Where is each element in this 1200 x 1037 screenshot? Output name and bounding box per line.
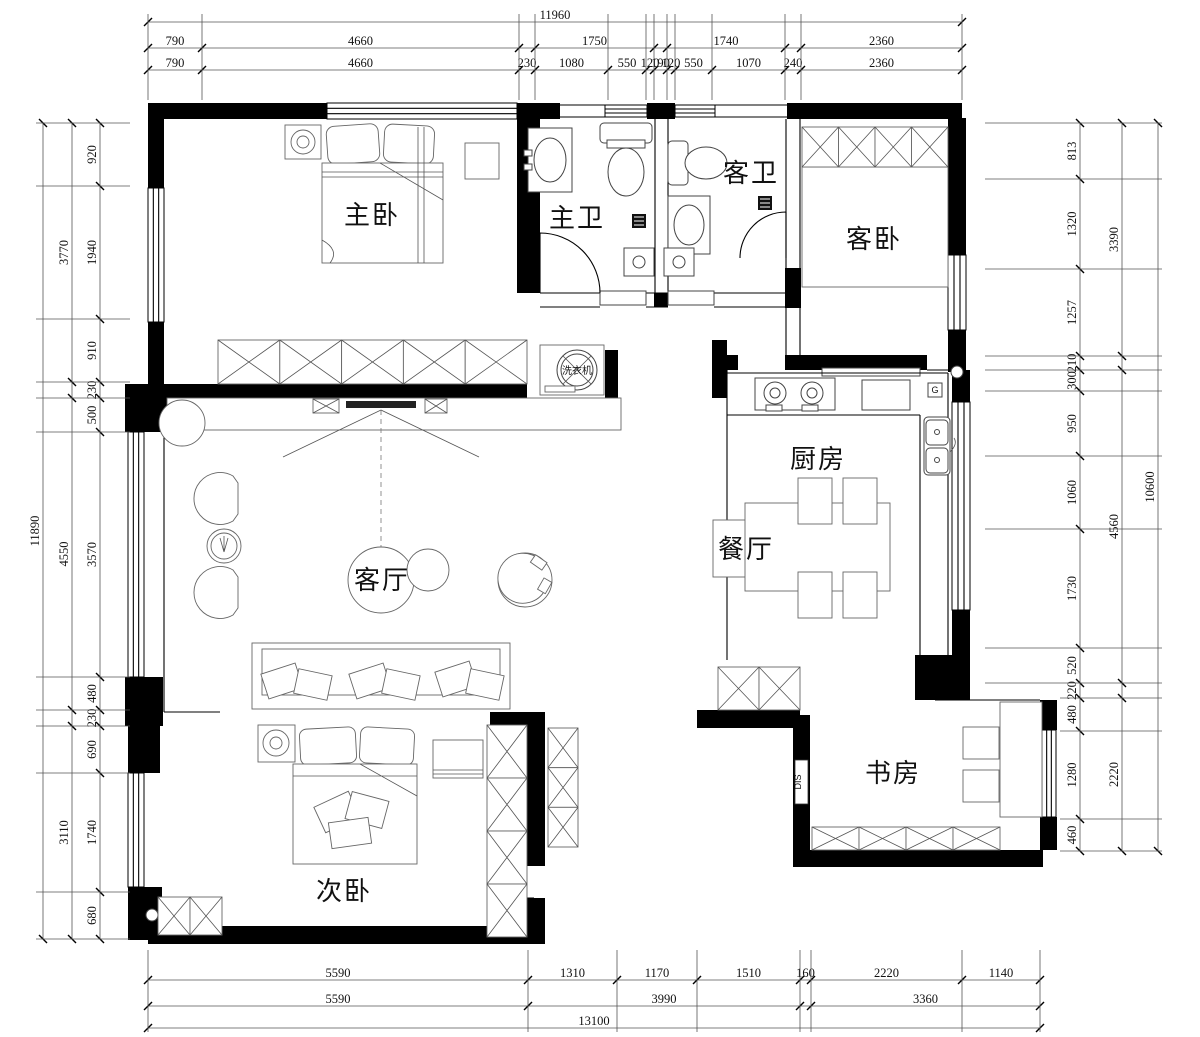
tv-cabinet — [159, 398, 621, 446]
dimension-label: 1060 — [1065, 480, 1079, 505]
dimension-label: 3570 — [85, 542, 99, 567]
dimension-label: 220 — [1065, 681, 1079, 700]
dimension-label: 1280 — [1065, 763, 1079, 788]
master-bath-door — [540, 233, 600, 293]
dimension-chain: 7904660175017402360 — [144, 34, 966, 52]
dimension-label: 520 — [1065, 656, 1079, 675]
gas-meter-label: G — [931, 385, 938, 395]
dimension-label: 500 — [85, 406, 99, 425]
window — [148, 188, 164, 322]
dimension-chain: 377045503110 — [57, 119, 76, 943]
extension-lines — [36, 14, 1162, 1032]
room-label-second-bedroom: 次卧 — [316, 876, 372, 906]
room-label-guest-bedroom: 客卧 — [846, 224, 902, 254]
dimension-label: 3770 — [57, 240, 71, 265]
dimension-label: 210 — [1065, 354, 1079, 373]
guest-wardrobe — [802, 127, 948, 167]
sofa — [252, 643, 510, 709]
dimension-layer: 1196079046601750174023607904660230108055… — [28, 8, 1162, 1032]
dimension-label: 3360 — [913, 992, 938, 1006]
dimension-label: 950 — [1065, 414, 1079, 433]
window — [128, 432, 144, 677]
dimension-label: 3990 — [652, 992, 677, 1006]
washer-label: 洗衣机 — [562, 364, 592, 377]
floorplan-drawing: 主卧 主卫 客卫 客卧 厨房 餐厅 客厅 次卧 书房 洗衣机 G DIS 119… — [0, 0, 1200, 1037]
tv-viewing-lines — [283, 410, 479, 547]
dimension-label: 230 — [518, 56, 537, 70]
dimension-label: 690 — [85, 740, 99, 759]
dimension-label: 1310 — [560, 966, 585, 980]
dis-label: DIS — [793, 774, 803, 789]
dimension-label: 2360 — [869, 34, 894, 48]
room-label-dining: 餐厅 — [718, 534, 774, 564]
dimension-label: 680 — [85, 906, 99, 925]
window — [128, 773, 144, 887]
second-wardrobe — [487, 725, 527, 937]
dimension-label: 160 — [796, 966, 815, 980]
dimension-label: 4550 — [57, 542, 71, 567]
dimension-label: 1750 — [582, 34, 607, 48]
master-wardrobe — [218, 340, 527, 384]
master-bath-fixtures — [524, 123, 654, 276]
dimension-label: 1730 — [1065, 576, 1079, 601]
dimension-label: 3110 — [57, 820, 71, 845]
guest-bath-door — [740, 212, 786, 258]
dimension-chain: 559039903360 — [144, 992, 1044, 1010]
entry-closet — [718, 667, 800, 710]
dimension-label: 120 — [662, 56, 681, 70]
window — [605, 105, 647, 117]
dimension-label: 4660 — [348, 56, 373, 70]
dimension-label: 480 — [1065, 705, 1079, 724]
dimension-label: 240 — [784, 56, 803, 70]
window — [327, 103, 517, 119]
dimension-label: 550 — [684, 56, 703, 70]
dimension-label: 1170 — [645, 966, 670, 980]
dimension-label: 3390 — [1107, 227, 1121, 252]
dimension-label: 920 — [85, 145, 99, 164]
dimension-label: 910 — [85, 341, 99, 360]
dimension-chain: 13100 — [144, 1014, 1044, 1032]
dimension-label: 230 — [85, 709, 99, 728]
window — [1042, 730, 1056, 817]
dimension-label: 1510 — [736, 966, 761, 980]
dimension-label: 300 — [1065, 371, 1079, 390]
dimension-label: 1320 — [1065, 212, 1079, 237]
dimension-label: 1257 — [1065, 300, 1079, 325]
dimension-chain: 11960 — [144, 8, 966, 26]
room-label-study: 书房 — [865, 758, 921, 788]
dimension-label: 1080 — [559, 56, 584, 70]
floorplan-canvas: 主卧 主卫 客卫 客卧 厨房 餐厅 客厅 次卧 书房 洗衣机 G DIS 119… — [0, 0, 1200, 1037]
study-shelf — [812, 827, 1000, 850]
master-bed — [285, 123, 499, 263]
dimension-label: 813 — [1065, 142, 1079, 161]
dimension-label: 4660 — [348, 34, 373, 48]
dimension-label: 11890 — [28, 516, 42, 547]
dimension-label: 5590 — [326, 992, 351, 1006]
dimension-label: 4560 — [1107, 514, 1121, 539]
room-label-guest-bath: 客卫 — [723, 158, 779, 188]
dimension-label: 1140 — [989, 966, 1014, 980]
dimension-label: 10600 — [1143, 471, 1157, 502]
room-label-master-bath: 主卫 — [549, 203, 605, 233]
dimension-label: 790 — [166, 34, 185, 48]
dimension-chain: 10600 — [1143, 119, 1162, 855]
swivel-chair — [498, 553, 552, 607]
dimension-label: 2220 — [1107, 762, 1121, 787]
dimension-label: 550 — [618, 56, 637, 70]
dimension-label: 11960 — [540, 8, 571, 22]
dimension-label: 2220 — [874, 966, 899, 980]
dimension-chain: 920194091023050035704802306901740680 — [85, 119, 104, 943]
dimension-label: 2360 — [869, 56, 894, 70]
room-label-kitchen: 厨房 — [790, 444, 846, 474]
room-label-living: 客厅 — [354, 565, 410, 595]
dimension-label: 460 — [1065, 826, 1079, 845]
room-label-master-bedroom: 主卧 — [344, 200, 400, 230]
dimension-label: 1740 — [714, 34, 739, 48]
dimension-chain: 559013101170151016022201140 — [144, 966, 1044, 984]
second-bed — [258, 725, 483, 864]
dimension-label: 1940 — [85, 240, 99, 265]
window — [952, 402, 970, 610]
dimension-label: 1070 — [736, 56, 761, 70]
dimension-chain: 7904660230108055012019012055010702402360 — [144, 56, 966, 74]
window — [948, 255, 966, 330]
dimension-label: 5590 — [326, 966, 351, 980]
dimension-label: 790 — [166, 56, 185, 70]
dimension-chain: 339045602220 — [1107, 119, 1126, 855]
dimension-chain: 11890 — [28, 119, 47, 943]
hall-closet — [548, 728, 578, 847]
window — [675, 105, 715, 117]
dimension-label: 230 — [85, 381, 99, 400]
dimension-label: 480 — [85, 684, 99, 703]
armchairs — [194, 473, 241, 619]
dimension-chain: 8131320125721030095010601730520220480128… — [1065, 119, 1084, 855]
dimension-label: 1740 — [85, 820, 99, 845]
dimension-label: 13100 — [578, 1014, 609, 1028]
